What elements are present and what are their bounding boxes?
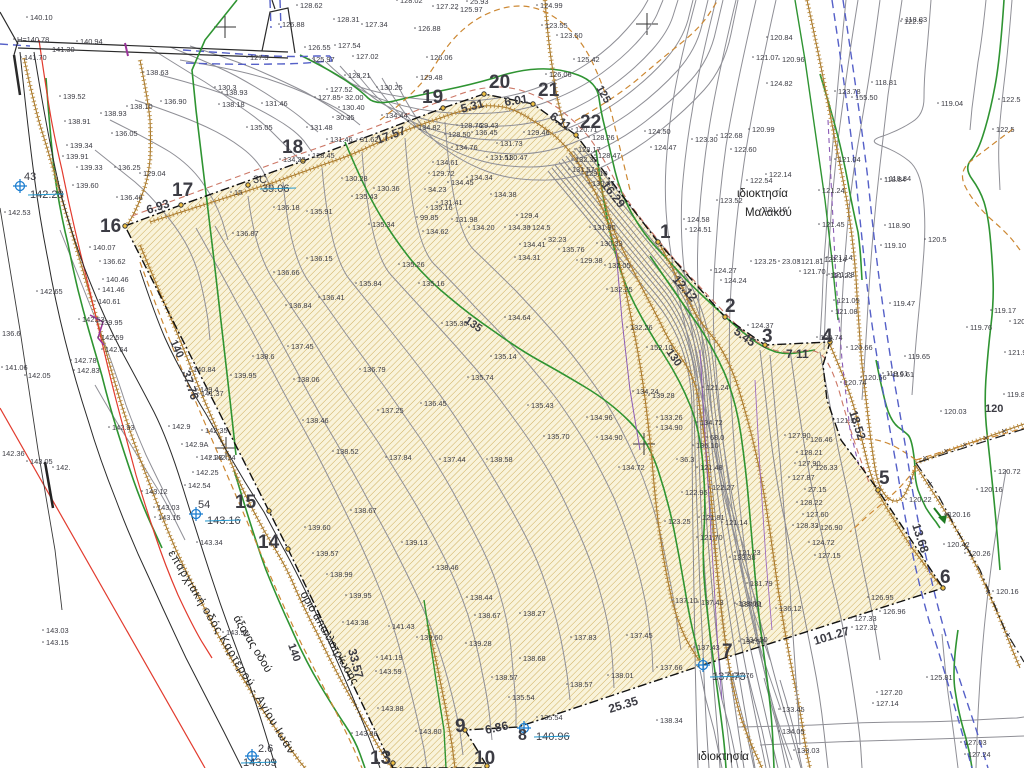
- svg-text:130.36: 130.36: [377, 184, 400, 193]
- svg-text:122.54: 122.54: [750, 176, 773, 185]
- svg-text:136.46: 136.46: [120, 193, 143, 202]
- svg-text:122.60: 122.60: [734, 145, 757, 154]
- svg-text:123.25: 123.25: [668, 517, 691, 526]
- svg-text:133.03: 133.03: [797, 746, 820, 755]
- svg-text:7 11: 7 11: [786, 347, 809, 361]
- svg-text:128.26: 128.26: [592, 133, 615, 142]
- svg-text:138.34: 138.34: [660, 716, 683, 725]
- svg-text:ιδιοκτησία: ιδιοκτησία: [737, 188, 788, 200]
- svg-text:120.96: 120.96: [782, 55, 805, 64]
- svg-text:141.46: 141.46: [102, 285, 125, 294]
- svg-text:131.46: 131.46: [265, 99, 288, 108]
- svg-text:140.61: 140.61: [98, 297, 121, 306]
- svg-text:138.44: 138.44: [470, 593, 493, 602]
- svg-text:143.03: 143.03: [46, 626, 69, 635]
- svg-text:118.90: 118.90: [888, 221, 910, 230]
- svg-text:127.24: 127.24: [968, 750, 991, 759]
- svg-text:139.95: 139.95: [349, 591, 372, 600]
- svg-text:119.17: 119.17: [994, 306, 1016, 315]
- svg-text:137.44: 137.44: [443, 455, 466, 464]
- svg-text:3C: 3C: [253, 174, 267, 186]
- svg-text:21: 21: [538, 80, 560, 101]
- svg-text:134.72: 134.72: [622, 463, 645, 472]
- svg-text:121.24: 121.24: [706, 383, 729, 392]
- svg-text:138.67: 138.67: [478, 611, 501, 620]
- svg-text:134.76: 134.76: [455, 143, 478, 152]
- svg-text:134.31: 134.31: [518, 253, 541, 262]
- svg-text:143.86: 143.86: [355, 729, 378, 738]
- svg-text:134.72: 134.72: [700, 418, 723, 427]
- svg-text:142.59: 142.59: [101, 333, 124, 342]
- svg-text:126.95: 126.95: [871, 593, 894, 602]
- svg-text:134.90: 134.90: [600, 433, 623, 442]
- svg-text:119.61: 119.61: [892, 370, 914, 379]
- svg-text:133.26: 133.26: [660, 413, 683, 422]
- svg-text:137.43: 137.43: [701, 598, 724, 607]
- svg-text:143.38: 143.38: [346, 618, 369, 627]
- svg-text:120.16: 120.16: [980, 485, 1003, 494]
- svg-text:142.53: 142.53: [8, 208, 31, 217]
- svg-text:124.51: 124.51: [689, 225, 712, 234]
- svg-text:120.16: 120.16: [996, 587, 1019, 596]
- svg-text:139.60: 139.60: [308, 523, 331, 532]
- svg-text:127.34: 127.34: [365, 20, 388, 29]
- svg-text:133.38: 133.38: [733, 553, 756, 562]
- svg-text:×: ×: [962, 440, 967, 450]
- svg-text:121.81: 121.81: [702, 513, 725, 522]
- svg-text:2.6: 2.6: [258, 743, 273, 755]
- svg-text:127.33: 127.33: [854, 614, 877, 623]
- svg-text:136.10: 136.10: [696, 441, 719, 450]
- svg-text:137.45: 137.45: [291, 342, 314, 351]
- svg-text:131.57: 131.57: [572, 165, 595, 174]
- svg-text:130.40: 130.40: [342, 103, 365, 112]
- svg-text:×: ×: [922, 453, 927, 463]
- svg-text:120.66: 120.66: [850, 343, 873, 352]
- svg-text:128.21: 128.21: [348, 71, 371, 80]
- svg-text:155.50: 155.50: [855, 93, 878, 102]
- svg-text:131.90: 131.90: [593, 223, 616, 232]
- svg-text:127.02: 127.02: [356, 52, 379, 61]
- svg-text:125.81: 125.81: [930, 673, 953, 682]
- svg-text:6: 6: [940, 567, 951, 588]
- svg-text:141.43: 141.43: [392, 622, 415, 631]
- svg-text:126.55: 126.55: [308, 43, 331, 52]
- svg-text:138.52: 138.52: [336, 447, 359, 456]
- svg-text:30.35: 30.35: [336, 113, 355, 122]
- svg-text:143.05: 143.05: [30, 457, 53, 466]
- svg-text:135.16: 135.16: [422, 279, 445, 288]
- svg-text:135.26: 135.26: [402, 260, 425, 269]
- svg-text:120.5: 120.5: [928, 235, 947, 244]
- svg-text:14: 14: [258, 532, 280, 553]
- svg-text:121.08: 121.08: [835, 307, 858, 316]
- svg-text:138.6: 138.6: [256, 352, 275, 361]
- svg-text:133.45: 133.45: [782, 705, 805, 714]
- svg-text:137.25: 137.25: [381, 406, 404, 415]
- svg-text:136.62: 136.62: [103, 257, 126, 266]
- svg-text:13: 13: [370, 748, 391, 768]
- svg-text:Μαλακού: Μαλακού: [745, 207, 792, 219]
- svg-text:130.33: 130.33: [600, 239, 623, 248]
- svg-text:124.47: 124.47: [654, 143, 677, 152]
- svg-text:124.27: 124.27: [714, 266, 737, 275]
- svg-text:125.97: 125.97: [312, 55, 335, 64]
- svg-text:124.50: 124.50: [648, 127, 671, 136]
- svg-text:139.95: 139.95: [234, 371, 257, 380]
- svg-text:126.96: 126.96: [883, 607, 906, 616]
- svg-text:43: 43: [24, 171, 36, 183]
- svg-text:137.84: 137.84: [389, 453, 412, 462]
- svg-text:4: 4: [822, 326, 833, 347]
- svg-text:134.50: 134.50: [745, 635, 768, 644]
- svg-text:29.43: 29.43: [480, 121, 499, 130]
- svg-text:122.95: 122.95: [685, 488, 708, 497]
- svg-text:143.15: 143.15: [158, 513, 181, 522]
- svg-text:121.70: 121.70: [803, 267, 826, 276]
- svg-text:143.15: 143.15: [46, 638, 69, 647]
- svg-text:138.57: 138.57: [495, 673, 518, 682]
- svg-text:135.54: 135.54: [540, 713, 563, 722]
- svg-text:139.33: 139.33: [80, 163, 103, 172]
- svg-text:126.90: 126.90: [820, 523, 843, 532]
- svg-text:142.: 142.: [56, 463, 70, 472]
- svg-text:127.22: 127.22: [436, 2, 459, 11]
- svg-text:134.62: 134.62: [426, 227, 449, 236]
- svg-text:15: 15: [234, 188, 242, 197]
- svg-text:132.25: 132.25: [610, 285, 633, 294]
- svg-text:138.63: 138.63: [146, 68, 169, 77]
- svg-text:127.32: 127.32: [855, 623, 878, 632]
- svg-text:138.06: 138.06: [297, 375, 320, 384]
- svg-text:142.64: 142.64: [105, 345, 128, 354]
- svg-text:16: 16: [100, 216, 121, 237]
- svg-text:8: 8: [518, 727, 527, 744]
- svg-text:134.41: 134.41: [523, 240, 546, 249]
- svg-text:135.43: 135.43: [531, 401, 554, 410]
- svg-text:139.52: 139.52: [63, 92, 86, 101]
- svg-text:120.22: 120.22: [909, 495, 932, 504]
- svg-text:134.44: 134.44: [385, 111, 408, 120]
- svg-text:142.25: 142.25: [196, 468, 219, 477]
- svg-text:32.23: 32.23: [548, 235, 567, 244]
- svg-text:122.5: 122.5: [1002, 95, 1021, 104]
- svg-text:134.34: 134.34: [470, 173, 493, 182]
- svg-text:135.91: 135.91: [310, 207, 333, 216]
- svg-text:136.41: 136.41: [322, 293, 345, 302]
- svg-text:138.58: 138.58: [490, 455, 513, 464]
- svg-text:139.13: 139.13: [405, 538, 428, 547]
- svg-text:1: 1: [660, 222, 671, 243]
- svg-text:121.14: 121.14: [830, 253, 853, 262]
- svg-text:136.25: 136.25: [118, 163, 141, 172]
- svg-text:120.26: 120.26: [968, 549, 991, 558]
- svg-text:10: 10: [474, 748, 495, 768]
- svg-text:139.60: 139.60: [76, 181, 99, 190]
- svg-text:128.33: 128.33: [796, 521, 819, 530]
- svg-text:142.65: 142.65: [40, 287, 63, 296]
- svg-text:143.34: 143.34: [200, 538, 223, 547]
- svg-text:142.34: 142.34: [213, 453, 236, 462]
- svg-text:32.00: 32.00: [345, 93, 364, 102]
- svg-text:140.07: 140.07: [93, 243, 116, 252]
- svg-text:143.59: 143.59: [379, 667, 402, 676]
- svg-text:99.85: 99.85: [420, 213, 439, 222]
- svg-text:122.5: 122.5: [904, 17, 923, 26]
- svg-text:138.01: 138.01: [611, 671, 634, 680]
- svg-text:119.65: 119.65: [908, 352, 930, 361]
- svg-text:135.54: 135.54: [512, 693, 535, 702]
- svg-text:128.22: 128.22: [800, 498, 823, 507]
- svg-text:125.42: 125.42: [577, 55, 600, 64]
- svg-text:×: ×: [1005, 630, 1010, 640]
- svg-text:130.3: 130.3: [218, 83, 237, 92]
- svg-text:137.43: 137.43: [697, 643, 720, 652]
- svg-text:140.46: 140.46: [106, 275, 129, 284]
- svg-text:136.66: 136.66: [277, 268, 300, 277]
- svg-text:126.46: 126.46: [810, 435, 833, 444]
- svg-text:131.41: 131.41: [440, 198, 463, 207]
- svg-text:20: 20: [489, 72, 510, 93]
- svg-text:126.06: 126.06: [430, 53, 453, 62]
- svg-text:138.10: 138.10: [130, 102, 153, 111]
- svg-text:138.68: 138.68: [523, 654, 546, 663]
- svg-text:121.23: 121.23: [832, 270, 855, 279]
- svg-text:135.34: 135.34: [372, 220, 395, 229]
- svg-text:142.05: 142.05: [28, 371, 51, 380]
- svg-text:139.91: 139.91: [66, 152, 89, 161]
- svg-text:138.99: 138.99: [330, 570, 353, 579]
- svg-text:128.62: 128.62: [300, 1, 323, 10]
- svg-text:127.54: 127.54: [338, 41, 361, 50]
- svg-text:135.74: 135.74: [471, 373, 494, 382]
- svg-text:×: ×: [1001, 426, 1006, 436]
- svg-text:123.50: 123.50: [560, 31, 583, 40]
- svg-text:139.60: 139.60: [420, 633, 443, 642]
- svg-text:135.76: 135.76: [562, 245, 585, 254]
- svg-text:121.45: 121.45: [822, 220, 845, 229]
- svg-text:121.04: 121.04: [838, 155, 861, 164]
- svg-text:×: ×: [927, 479, 932, 489]
- svg-text:H=140.78: H=140.78: [17, 35, 49, 44]
- svg-text:132.26: 132.26: [630, 323, 653, 332]
- svg-text:119.76: 119.76: [970, 323, 992, 332]
- svg-text:130.25: 130.25: [380, 83, 403, 92]
- svg-text:129.48: 129.48: [420, 73, 443, 82]
- svg-text:143.12: 143.12: [145, 487, 168, 496]
- svg-text:141.19: 141.19: [380, 653, 403, 662]
- svg-text:120.56: 120.56: [864, 373, 887, 382]
- svg-text:127.20: 127.20: [880, 688, 903, 697]
- svg-text:134.38: 134.38: [494, 190, 517, 199]
- svg-text:142.36: 142.36: [2, 449, 25, 458]
- svg-text:140.10: 140.10: [30, 13, 53, 22]
- svg-text:121.07: 121.07: [756, 53, 779, 62]
- svg-text:128.31: 128.31: [337, 15, 360, 24]
- svg-text:ιδιοκτησία: ιδιοκτησία: [698, 751, 749, 763]
- svg-text:124.24: 124.24: [724, 276, 747, 285]
- svg-text:138.93: 138.93: [104, 109, 127, 118]
- svg-text:134.96: 134.96: [590, 413, 613, 422]
- svg-text:127.85: 127.85: [318, 93, 341, 102]
- svg-text:138.91: 138.91: [68, 117, 91, 126]
- svg-text:140.94: 140.94: [80, 37, 103, 46]
- svg-text:120.23: 120.23: [1013, 317, 1024, 326]
- svg-text:140.84: 140.84: [193, 365, 216, 374]
- svg-text:122.5: 122.5: [996, 125, 1015, 134]
- svg-text:137.10: 137.10: [675, 596, 698, 605]
- svg-text:135.70: 135.70: [547, 432, 570, 441]
- svg-text:131.46: 131.46: [330, 135, 353, 144]
- svg-text:118.81: 118.81: [875, 78, 897, 87]
- svg-text:135.14: 135.14: [494, 352, 517, 361]
- svg-text:128.21: 128.21: [800, 448, 823, 457]
- svg-text:135.84: 135.84: [359, 279, 382, 288]
- svg-text:139.57: 139.57: [316, 549, 339, 558]
- svg-text:126.06: 126.06: [549, 70, 572, 79]
- svg-text:36.3: 36.3: [680, 455, 694, 464]
- svg-text:2: 2: [725, 296, 736, 317]
- svg-text:136.87: 136.87: [236, 229, 259, 238]
- svg-text:×: ×: [985, 587, 990, 597]
- svg-text:3: 3: [762, 326, 773, 347]
- svg-text:141.06: 141.06: [5, 363, 28, 372]
- svg-text:127.3: 127.3: [250, 53, 269, 62]
- svg-text:137.45: 137.45: [630, 631, 653, 640]
- svg-text:128.50: 128.50: [448, 130, 471, 139]
- svg-text:120: 120: [985, 403, 1003, 415]
- svg-text:22: 22: [580, 112, 601, 133]
- svg-text:127.60: 127.60: [806, 510, 829, 519]
- svg-text:129.46: 129.46: [527, 128, 550, 137]
- svg-text:127.14: 127.14: [876, 699, 899, 708]
- svg-text:122.68: 122.68: [720, 131, 743, 140]
- svg-text:121.9: 121.9: [1008, 348, 1024, 357]
- svg-text:138.27: 138.27: [523, 609, 546, 618]
- svg-text:123.25: 123.25: [754, 257, 777, 266]
- svg-text:134.05: 134.05: [782, 727, 805, 736]
- svg-text:121.81: 121.81: [801, 257, 824, 266]
- svg-text:136.79: 136.79: [363, 365, 386, 374]
- svg-text:139.28: 139.28: [652, 391, 675, 400]
- svg-text:54: 54: [198, 499, 210, 511]
- svg-text:136.45: 136.45: [424, 399, 447, 408]
- svg-text:120.84: 120.84: [770, 33, 793, 42]
- svg-text:124.58: 124.58: [687, 215, 710, 224]
- svg-text:141.37: 141.37: [201, 389, 224, 398]
- svg-text:132.39: 132.39: [575, 155, 598, 164]
- svg-text:119.85: 119.85: [1007, 390, 1024, 399]
- svg-text:142.9A: 142.9A: [185, 440, 208, 449]
- svg-text:138.46: 138.46: [306, 416, 329, 425]
- svg-text:120.72: 120.72: [998, 467, 1021, 476]
- svg-text:15: 15: [235, 492, 257, 513]
- svg-text:128.47: 128.47: [598, 151, 621, 160]
- svg-text:141.30: 141.30: [52, 45, 75, 54]
- svg-text:142.9: 142.9: [172, 422, 191, 431]
- svg-text:129.04: 129.04: [143, 169, 166, 178]
- svg-text:133.60: 133.60: [738, 599, 761, 608]
- svg-text:134.30: 134.30: [508, 223, 531, 232]
- svg-text:124.5: 124.5: [532, 223, 551, 232]
- svg-text:131.48: 131.48: [310, 123, 333, 132]
- svg-text:130.28: 130.28: [345, 174, 368, 183]
- svg-text:135.43: 135.43: [355, 192, 378, 201]
- svg-text:121.24: 121.24: [822, 186, 845, 195]
- svg-text:121.48: 121.48: [700, 463, 723, 472]
- svg-text:123.55: 123.55: [545, 21, 568, 30]
- svg-text:9: 9: [455, 716, 466, 737]
- svg-text:19: 19: [422, 87, 443, 108]
- svg-text:142.83: 142.83: [77, 366, 100, 375]
- svg-text:136.90: 136.90: [164, 97, 187, 106]
- svg-text:121.05: 121.05: [837, 296, 860, 305]
- svg-text:138.46: 138.46: [436, 563, 459, 572]
- svg-text:142.93: 142.93: [112, 423, 135, 432]
- svg-text:139.34: 139.34: [70, 141, 93, 150]
- svg-text:129.4: 129.4: [520, 211, 539, 220]
- svg-text:137.83: 137.83: [574, 633, 597, 642]
- svg-text:18: 18: [282, 137, 303, 158]
- svg-text:124.82: 124.82: [770, 79, 793, 88]
- svg-text:142.54: 142.54: [188, 481, 211, 490]
- svg-text:120.03: 120.03: [944, 407, 967, 416]
- svg-text:25.93: 25.93: [470, 0, 489, 6]
- svg-text:143.03: 143.03: [157, 503, 180, 512]
- svg-text:134.20: 134.20: [472, 223, 495, 232]
- svg-text:134.82: 134.82: [418, 123, 441, 132]
- svg-text:126.33: 126.33: [815, 463, 838, 472]
- svg-text:143.80: 143.80: [419, 727, 442, 736]
- svg-text:17: 17: [172, 180, 193, 201]
- svg-text:136.12: 136.12: [779, 604, 802, 613]
- svg-text:121.14: 121.14: [725, 518, 748, 527]
- svg-text:138.18: 138.18: [222, 100, 245, 109]
- svg-text:142.78: 142.78: [74, 356, 97, 365]
- svg-text:34.23: 34.23: [428, 185, 447, 194]
- svg-text:131.79: 131.79: [750, 579, 773, 588]
- svg-text:123.30: 123.30: [695, 135, 718, 144]
- svg-text:129.72: 129.72: [432, 169, 455, 178]
- svg-text:7: 7: [722, 641, 733, 662]
- svg-text:134.61: 134.61: [436, 158, 459, 167]
- svg-text:136.6: 136.6: [2, 329, 21, 338]
- svg-text:128.45: 128.45: [312, 151, 335, 160]
- svg-text:125.97: 125.97: [460, 5, 483, 14]
- svg-text:119.04: 119.04: [941, 99, 963, 108]
- svg-text:134.90: 134.90: [660, 423, 683, 432]
- svg-text:124.72: 124.72: [812, 538, 835, 547]
- svg-text:120.42: 120.42: [947, 540, 970, 549]
- svg-text:136.05: 136.05: [115, 129, 138, 138]
- svg-text:127.87: 127.87: [792, 473, 815, 482]
- svg-text:143.88: 143.88: [381, 704, 404, 713]
- svg-text:119.10: 119.10: [884, 241, 906, 250]
- svg-text:141.70: 141.70: [24, 53, 47, 62]
- svg-text:139.95: 139.95: [100, 318, 123, 327]
- svg-text:120.16: 120.16: [948, 510, 971, 519]
- svg-text:127.03: 127.03: [964, 738, 987, 747]
- svg-text:×: ×: [983, 433, 988, 443]
- svg-text:127.15: 127.15: [818, 551, 841, 560]
- svg-text:126.88: 126.88: [282, 20, 305, 29]
- svg-text:118.84: 118.84: [889, 174, 911, 183]
- svg-text:134.64: 134.64: [508, 313, 531, 322]
- svg-text:5: 5: [879, 468, 890, 489]
- svg-text:119.47: 119.47: [893, 299, 915, 308]
- svg-text:128.02: 128.02: [400, 0, 423, 5]
- svg-text:132.05: 132.05: [608, 261, 631, 270]
